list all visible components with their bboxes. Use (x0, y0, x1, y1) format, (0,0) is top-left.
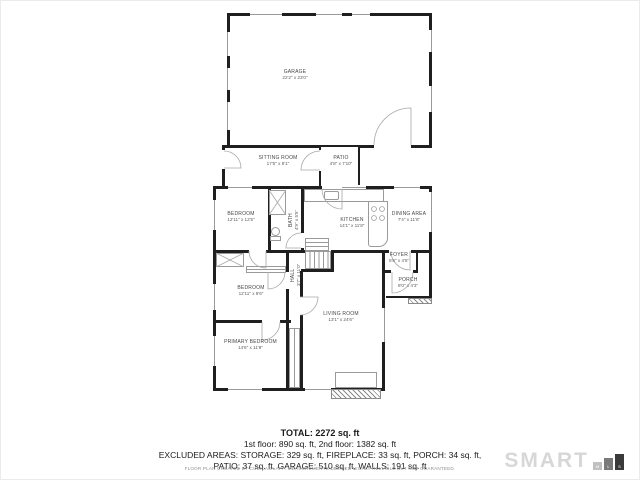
storage-closet (269, 190, 286, 215)
room-label-primary-bedroom: PRIMARY BEDROOM 14'6" x 11'8" (213, 339, 288, 351)
smartmls-logo: SMART M L S (504, 452, 624, 470)
stairs (305, 238, 329, 251)
room-label-living-room: LIVING ROOM 13'1" x 24'6" (301, 311, 381, 323)
wall (300, 315, 303, 391)
window (225, 68, 230, 90)
room-dims: 13'1" x 24'6" (301, 317, 381, 323)
toilet-tank (270, 236, 281, 241)
door-opening (222, 150, 226, 169)
room-label-dining-area: DINING AREA 7'4" x 11'6" (384, 211, 434, 223)
fireplace (331, 389, 381, 399)
logo-bar-m: M (593, 462, 602, 470)
window (382, 308, 387, 342)
porch-step (408, 298, 432, 304)
window (316, 12, 342, 17)
wall (280, 320, 291, 323)
floor-plan-page: GARAGE 22'2" x 23'0" SITTING ROOM 17'5" … (0, 0, 640, 480)
room-label-foyer: FOYER 5'8" x 4'5" (379, 252, 419, 264)
window (394, 185, 420, 190)
total-area-text: TOTAL: 2272 sq. ft (0, 428, 640, 439)
logo-wordmark: SMART (504, 452, 589, 470)
window (250, 12, 282, 17)
room-label-bedroom1: BEDROOM 12'11" x 12'5" (215, 211, 267, 223)
room-label-garage: GARAGE 22'2" x 23'0" (245, 69, 345, 81)
window (225, 102, 230, 130)
toilet-icon (271, 227, 280, 236)
door-opening (286, 272, 289, 289)
kitchen-sink (324, 191, 339, 200)
window (212, 284, 217, 310)
wall (213, 320, 262, 323)
wall (301, 269, 334, 272)
patio-outline (319, 145, 360, 189)
room-dims: 14'6" x 11'8" (213, 345, 288, 351)
room-label-kitchen: KITCHEN 14'1" x 11'8" (317, 217, 387, 229)
room-dims: 4'9" x 5'5" (294, 198, 300, 242)
door-opening (249, 250, 266, 253)
wall (331, 250, 334, 271)
room-label-bath: BATH 4'9" x 5'5" (288, 198, 300, 242)
door-opening (374, 144, 411, 149)
room-dims: 4'8" x 7'10" (321, 161, 361, 167)
primary-door-arc (262, 322, 280, 340)
stairs (305, 251, 331, 269)
window (305, 387, 331, 392)
room-label-bedroom2: BEDROOM 12'11" x 9'6" (225, 285, 277, 297)
room-dims: 7'4" x 11'6" (384, 217, 434, 223)
window (429, 30, 434, 52)
room-dims: 14'1" x 11'8" (317, 223, 387, 229)
room-dims: 22'2" x 23'0" (245, 75, 345, 81)
window (228, 185, 252, 190)
room-label-porch: PORCH 8'0" x 4'3" (388, 277, 428, 289)
fireplace-hearth (335, 372, 377, 388)
window (352, 12, 370, 17)
window (225, 32, 230, 56)
sitting-room-outline (222, 145, 322, 189)
wall (413, 270, 418, 273)
room-dims: 17'5" x 8'1" (238, 161, 318, 167)
room-label-sitting-room: SITTING ROOM 17'5" x 8'1" (238, 155, 318, 167)
storage-closet (216, 253, 244, 267)
logo-bar-s: S (615, 454, 624, 470)
room-dims: 12'11" x 12'5" (215, 217, 267, 223)
room-dims: 3'7" x 11'0" (296, 253, 302, 297)
logo-bars: M L S (593, 454, 624, 470)
room-dims: 5'8" x 4'5" (379, 258, 419, 264)
closet-sliding-doors (246, 266, 286, 273)
room-label-hall: HALL 3'7" x 11'0" (290, 253, 302, 297)
door-opening (301, 233, 304, 248)
room-label-patio: PATIO 4'8" x 7'10" (321, 155, 361, 167)
room-dims: 12'11" x 9'6" (225, 291, 277, 297)
window (429, 86, 434, 112)
room-dims: 8'0" x 4'3" (388, 283, 428, 289)
logo-bar-l: L (604, 458, 613, 470)
primary-closet (289, 328, 300, 388)
window (228, 387, 262, 392)
wall (382, 270, 391, 273)
